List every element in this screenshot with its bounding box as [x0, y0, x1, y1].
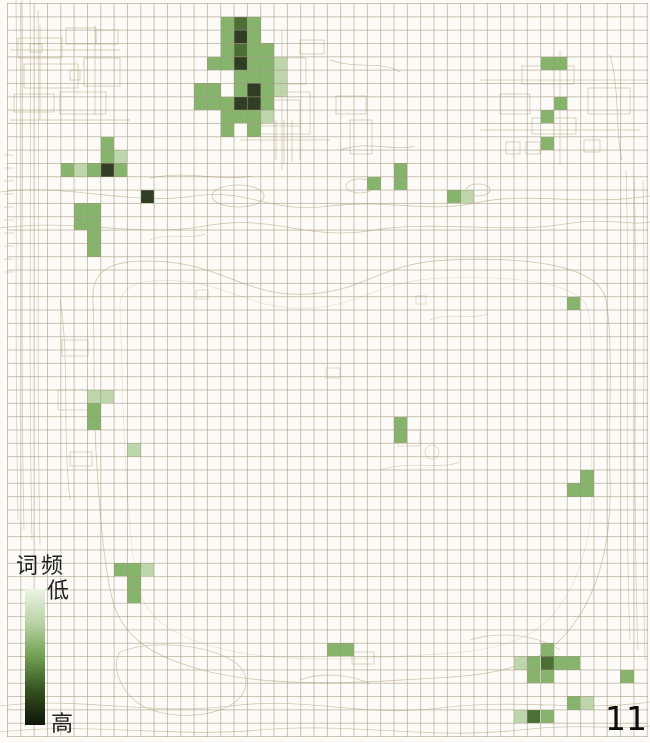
heat-cell: [261, 57, 274, 70]
heat-cell: [261, 43, 274, 56]
heat-cell: [87, 243, 100, 256]
heat-cell: [247, 30, 260, 43]
heat-cell: [247, 83, 260, 96]
heat-cell: [234, 57, 247, 70]
heat-cell: [127, 576, 140, 589]
heat-cell: [234, 30, 247, 43]
heat-cell: [554, 57, 567, 70]
heat-cell: [541, 643, 554, 656]
legend-high-label: 高: [51, 706, 73, 738]
heat-cell: [87, 163, 100, 176]
heat-cell: [87, 203, 100, 216]
heat-cell: [234, 70, 247, 83]
heat-cell: [61, 163, 74, 176]
heat-cell: [247, 97, 260, 110]
heat-cell: [541, 670, 554, 683]
heat-cell: [247, 110, 260, 123]
heat-cell: [567, 696, 580, 709]
heat-cell: [274, 83, 287, 96]
heat-cell: [567, 656, 580, 669]
heat-cell: [234, 110, 247, 123]
heat-cell: [141, 190, 154, 203]
heat-cell: [527, 670, 540, 683]
heat-cell: [527, 656, 540, 669]
heat-cell: [580, 483, 593, 496]
heat-cell: [221, 123, 234, 136]
heat-cell: [247, 57, 260, 70]
heat-cell: [274, 57, 287, 70]
heat-cell: [580, 696, 593, 709]
heat-cell: [221, 57, 234, 70]
heat-cell: [221, 110, 234, 123]
word-frequency-heatmap-figure: 词频 低 高 11: [0, 0, 650, 743]
legend-gradient-bar: [25, 589, 45, 725]
heat-cell: [234, 17, 247, 30]
heat-cell: [341, 643, 354, 656]
heat-cell: [114, 163, 127, 176]
heat-cell: [207, 57, 220, 70]
heat-cell: [87, 230, 100, 243]
heat-cell: [580, 470, 593, 483]
heat-cell: [541, 137, 554, 150]
heat-cell: [541, 710, 554, 723]
heat-cell: [514, 710, 527, 723]
heat-cell: [194, 97, 207, 110]
heat-cell: [541, 110, 554, 123]
heat-cell: [207, 83, 220, 96]
heat-cell: [234, 43, 247, 56]
heat-cell: [234, 97, 247, 110]
heat-cell: [327, 643, 340, 656]
heat-cell: [394, 417, 407, 430]
heat-cell: [567, 297, 580, 310]
heat-cell: [261, 97, 274, 110]
heat-cell: [261, 83, 274, 96]
heat-cell: [101, 390, 114, 403]
heat-cell: [554, 656, 567, 669]
heat-cell: [394, 430, 407, 443]
heat-cell: [274, 70, 287, 83]
heat-cell: [127, 590, 140, 603]
legend-low-label: 低: [47, 573, 69, 605]
heat-cells: [0, 0, 650, 743]
heat-cell: [554, 97, 567, 110]
heat-cell: [221, 17, 234, 30]
heat-cell: [87, 417, 100, 430]
heat-cell: [234, 83, 247, 96]
heat-cell: [261, 110, 274, 123]
heat-cell: [394, 163, 407, 176]
heat-cell: [247, 123, 260, 136]
heat-cell: [620, 670, 633, 683]
heat-cell: [101, 150, 114, 163]
heat-cell: [367, 177, 380, 190]
heat-cell: [74, 217, 87, 230]
heat-cell: [541, 656, 554, 669]
heat-cell: [221, 97, 234, 110]
heat-cell: [207, 97, 220, 110]
heat-cell: [114, 563, 127, 576]
heat-cell: [394, 177, 407, 190]
heat-cell: [221, 43, 234, 56]
heat-cell: [87, 403, 100, 416]
heat-cell: [127, 563, 140, 576]
heat-cell: [74, 163, 87, 176]
heat-cell: [247, 17, 260, 30]
heat-cell: [527, 710, 540, 723]
heat-cell: [541, 57, 554, 70]
heat-cell: [461, 190, 474, 203]
heat-cell: [567, 483, 580, 496]
heat-cell: [101, 163, 114, 176]
heat-cell: [114, 150, 127, 163]
heat-cell: [87, 390, 100, 403]
heat-cell: [247, 70, 260, 83]
heat-cell: [447, 190, 460, 203]
page-number: 11: [605, 699, 647, 738]
heat-cell: [74, 203, 87, 216]
heat-cell: [194, 83, 207, 96]
heat-cell: [101, 137, 114, 150]
heat-cell: [261, 70, 274, 83]
heat-cell: [221, 30, 234, 43]
heat-cell: [247, 43, 260, 56]
heat-cell: [141, 563, 154, 576]
heat-cell: [87, 217, 100, 230]
heat-cell: [127, 443, 140, 456]
heat-cell: [514, 656, 527, 669]
